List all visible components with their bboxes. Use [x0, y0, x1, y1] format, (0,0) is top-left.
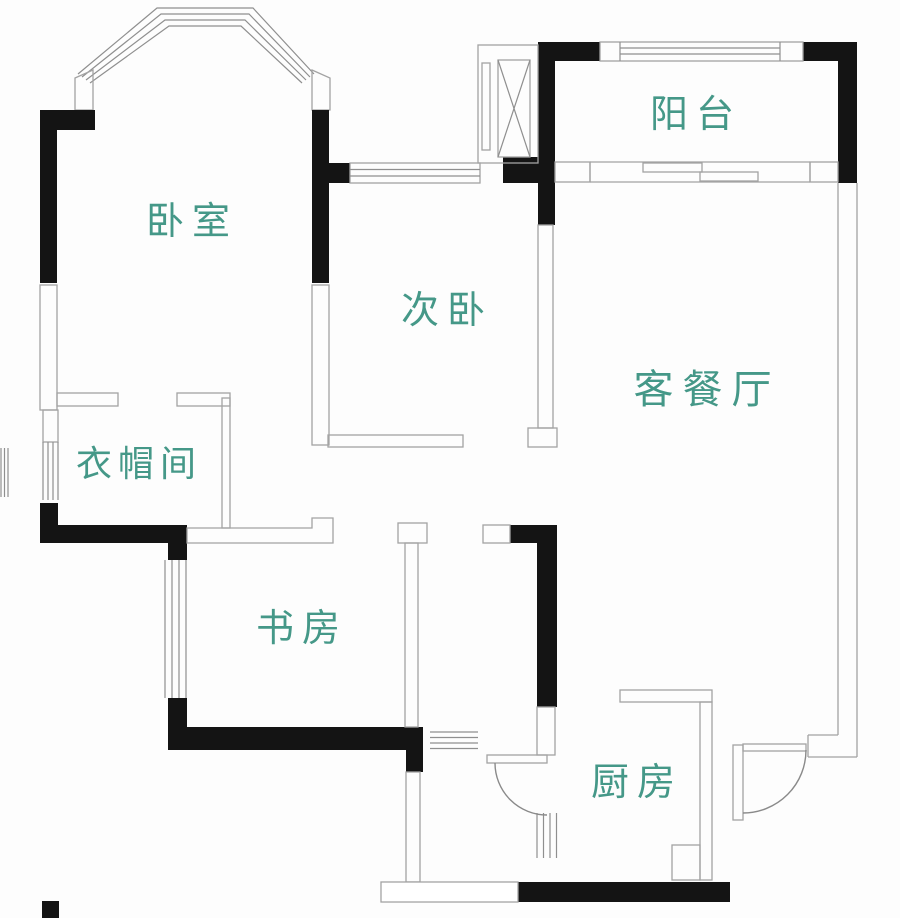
door-entry-jamb	[733, 745, 743, 820]
room-label-kitchen: 厨房	[591, 760, 683, 804]
door-entry	[733, 744, 806, 820]
window-study-bottom	[430, 732, 478, 749]
bay-window-right-post	[312, 70, 330, 110]
room-label-study: 书房	[256, 606, 348, 650]
bay-window	[75, 8, 330, 110]
window-study-left	[165, 560, 186, 698]
wall-second-bedroom-right	[538, 225, 553, 428]
wall-entry-bottom-cap	[381, 882, 518, 902]
wall-corridor-south	[187, 518, 333, 543]
door-entry-panel	[743, 744, 806, 751]
wall-kitchen-top	[620, 690, 712, 702]
wall-cloakroom-left-upper	[43, 410, 58, 442]
wall-second-bedroom-right-foot	[528, 428, 557, 447]
wall-cloakroom-bottom	[40, 503, 187, 560]
room-label-master-bedroom: 卧室	[146, 199, 238, 243]
wall-living-right	[808, 183, 857, 757]
wall-study-right-cap	[398, 523, 427, 543]
wall-master-left-lower	[40, 285, 57, 410]
room-label-balcony: 阳台	[650, 92, 742, 136]
wall-kitchen-right	[700, 702, 712, 880]
window-cloakroom-left	[43, 442, 58, 500]
wall-kitchen-left	[510, 525, 557, 707]
sliding-door-balcony	[590, 162, 810, 182]
wall-stub-second-bedroom-window	[329, 163, 350, 183]
elevator-shaft	[478, 45, 538, 163]
room-label-living-dining: 客餐厅	[634, 367, 781, 413]
window-left-edge	[1, 448, 8, 497]
window-second-bedroom-top	[350, 163, 480, 183]
wall-kitchen-bottom	[518, 882, 730, 902]
room-label-second-bedroom: 次卧	[401, 288, 493, 332]
wall-master-right	[312, 110, 329, 283]
sliding-door-panel-b	[700, 172, 758, 181]
wall-shaft-stub	[503, 157, 538, 183]
wall-entry-stem	[406, 772, 420, 882]
sliding-door-panel-a	[643, 163, 702, 172]
shaft-strip	[482, 63, 490, 150]
door-kitchen-west	[487, 755, 547, 815]
wall-tick-balcony-right	[810, 162, 838, 182]
wall-balcony-left	[538, 42, 600, 225]
door-entry-arc	[743, 750, 806, 813]
door-kitchen-west-arc	[495, 763, 547, 815]
wall-study-bottom	[168, 698, 423, 772]
wall-master-bottom-a	[57, 393, 118, 406]
wall-master-left	[40, 110, 95, 283]
floor-plan-svg: 卧室 次卧 阳台 客餐厅 衣帽间 书房 厨房	[0, 0, 900, 918]
window-balcony-top	[600, 42, 803, 61]
kitchen-flue-box	[672, 845, 700, 880]
wall-second-bedroom-left	[312, 285, 329, 445]
wall-kitchen-left-thin	[537, 707, 555, 755]
door-kitchen-west-panel	[487, 755, 547, 763]
wall-second-bedroom-bottom	[328, 435, 463, 447]
room-label-cloakroom: 衣帽间	[76, 444, 202, 485]
wall-corridor-left	[222, 398, 230, 528]
wall-tick-balcony-left	[555, 162, 590, 182]
floor-plan-canvas: 卧室 次卧 阳台 客餐厅 衣帽间 书房 厨房	[0, 0, 900, 918]
wall-tick-corridor-east	[483, 525, 510, 543]
room-labels: 卧室 次卧 阳台 客餐厅 衣帽间 书房 厨房	[76, 92, 781, 804]
window-kitchen-left	[537, 813, 557, 858]
wall-fragment-bottom-left	[42, 901, 59, 918]
wall-study-right	[405, 543, 418, 727]
